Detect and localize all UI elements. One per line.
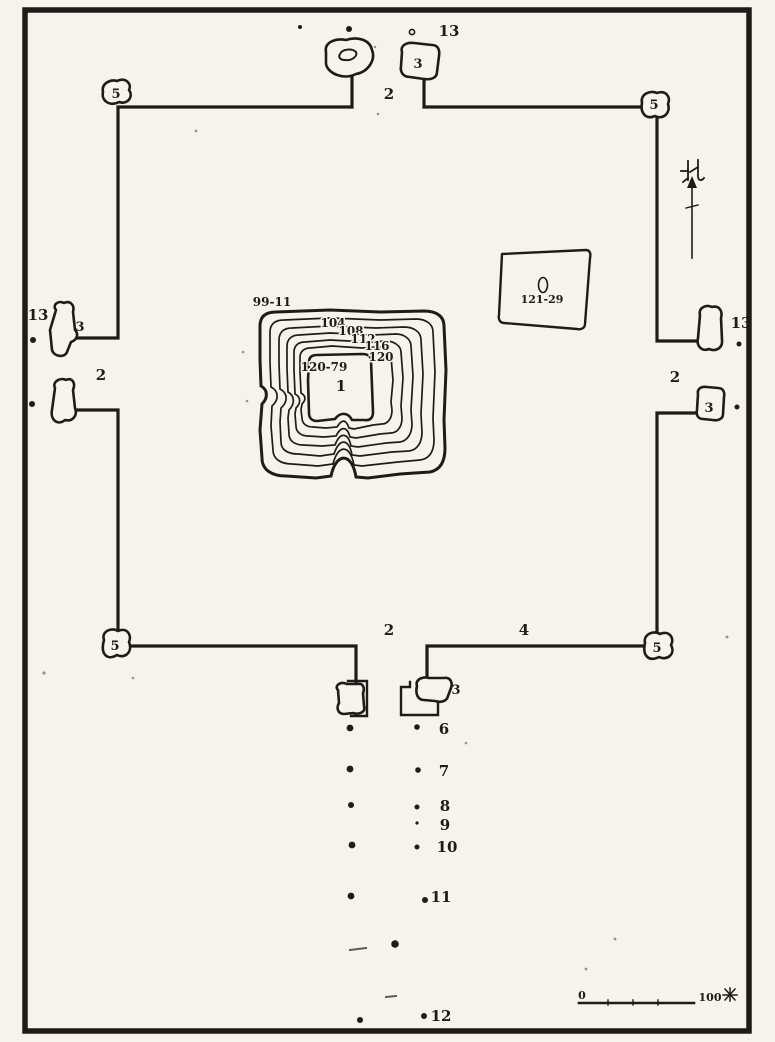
point-label-6: 6: [439, 720, 449, 738]
survey-dot: [422, 897, 428, 903]
south-wall-number: 4: [519, 621, 529, 639]
survey-dot: [298, 25, 302, 29]
survey-dot: [349, 842, 356, 849]
scale-end-number: 100: [699, 991, 722, 1004]
west-gate-number: 2: [96, 366, 106, 384]
survey-dot: [735, 405, 740, 410]
scan-speck: [374, 46, 376, 48]
survey-dot: [415, 805, 420, 810]
east-gate-north-mound: [698, 306, 722, 350]
site-plan-page: 99-11 104 108 112 116 120 120-79 1 121-2…: [0, 0, 775, 1042]
mound-number-label: 1: [336, 377, 346, 395]
survey-dot: [30, 337, 36, 343]
west-gate-mound-label: 3: [75, 320, 84, 335]
point-label-8: 8: [440, 797, 450, 815]
west-gate-south-mound: [52, 379, 76, 422]
survey-dot: [348, 802, 354, 808]
east-gate-mound-label: 3: [704, 401, 713, 416]
survey-dot: [347, 766, 354, 773]
point-label-12: 12: [431, 1007, 452, 1025]
survey-dot: [737, 342, 742, 347]
corner-label-nw: 5: [111, 87, 120, 102]
scale-start-label: 0: [578, 989, 586, 1002]
north-point-13-label: 13: [439, 22, 460, 40]
corner-label-se: 5: [652, 641, 661, 656]
west-point-13-label: 13: [28, 306, 49, 324]
base-elevation-label: 99-11: [253, 295, 291, 309]
south-gate-mound-label: 3: [451, 683, 460, 698]
survey-dot: [347, 725, 354, 732]
scan-smudge: [386, 996, 396, 997]
corner-label-sw: 5: [110, 639, 119, 654]
paper-background: [0, 0, 775, 1042]
north-gate-number: 2: [384, 85, 394, 103]
survey-dot: [414, 724, 420, 730]
south-gate-number: 2: [384, 621, 394, 639]
survey-dot: [421, 1013, 427, 1019]
point-label-10: 10: [437, 838, 458, 856]
platform-elevation-label: 121-29: [521, 293, 564, 306]
east-gate-number: 2: [670, 368, 680, 386]
point-label-7: 7: [439, 762, 449, 780]
survey-dot: [29, 401, 35, 407]
south-gate-east-mound: [416, 677, 451, 701]
survey-dot: [415, 767, 421, 773]
point-label-9: 9: [440, 816, 450, 834]
east-point-13-label: 13: [731, 314, 752, 332]
contour-label-120: 120: [368, 350, 393, 364]
summit-elevation-label: 120-79: [301, 360, 348, 374]
survey-dot: [348, 893, 355, 900]
corner-label-ne: 5: [649, 98, 658, 113]
survey-dot: [357, 1017, 363, 1023]
survey-dot: [391, 940, 399, 948]
survey-dot: [346, 26, 352, 32]
site-plan-figure: 99-11 104 108 112 116 120 120-79 1 121-2…: [0, 0, 775, 1042]
north-gate-west-mound: [326, 38, 373, 76]
south-gate-west-mound: [337, 683, 365, 714]
survey-dot: [415, 821, 418, 824]
point-label-11: 11: [431, 888, 452, 906]
survey-dot: [415, 845, 420, 850]
north-gate-mound-label: 3: [413, 57, 422, 72]
meter-character-glyph: [723, 988, 737, 1001]
